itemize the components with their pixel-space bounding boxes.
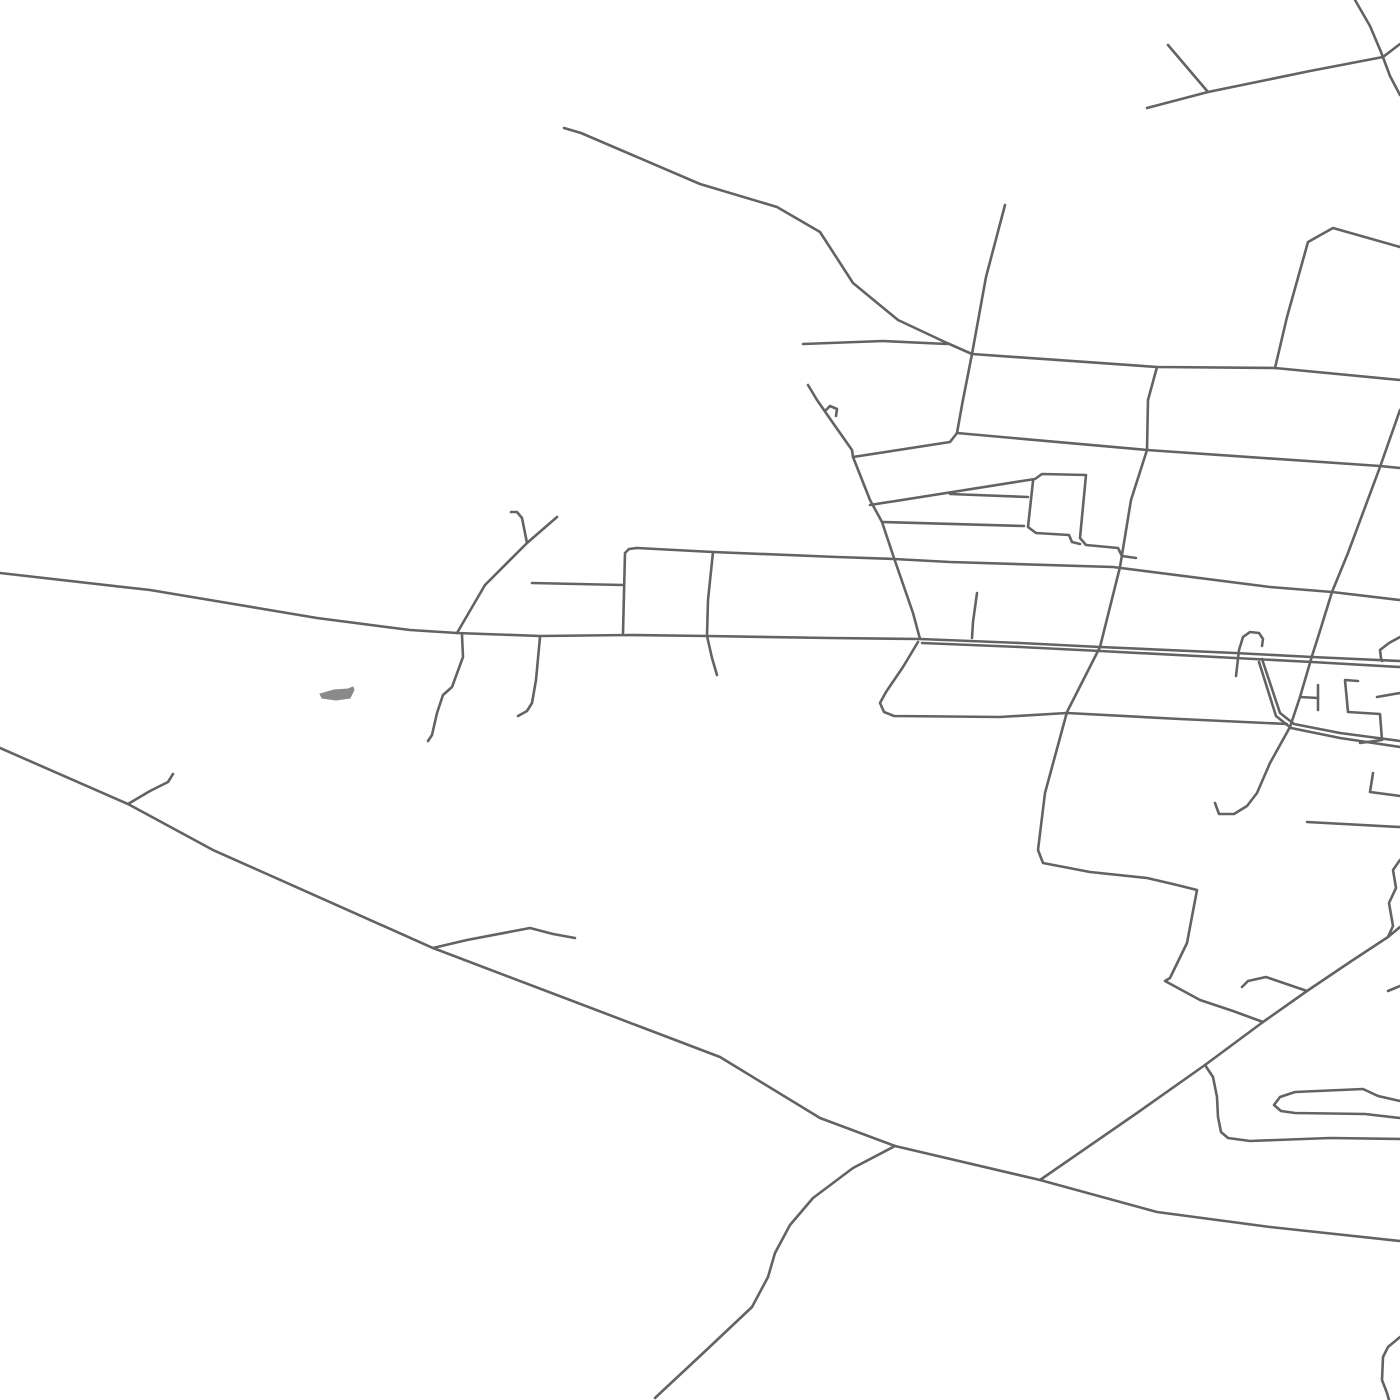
road-mid-vertical-street [707,552,717,675]
road-ladder-rung-h [1300,697,1318,698]
road-right-edge-stub-2 [1388,986,1400,991]
road-northeast-diagonal [1040,927,1400,1180]
road-cross-street-2 [637,548,1400,600]
road-cul-de-sac-loop [1274,1089,1400,1118]
road-cross-street-1 [957,433,1400,468]
road-fork-down-lane [428,635,463,741]
road-north-vertical [957,205,1005,433]
road-block-lane-1 [950,494,1028,497]
road-l-shape-lane [1370,773,1400,796]
road-top-right-diagonal [1147,44,1400,108]
road-bottom-right-curve [1382,1337,1400,1400]
road-fork-up-curl [511,512,527,543]
road-southwest-branch-road [433,928,575,948]
road-lower-road-east-b [1259,662,1400,747]
road-block-loop-inner [1028,481,1080,544]
road-top-right-curve [1355,0,1400,95]
road-south-branch-road [655,1146,895,1398]
road-long-vertical-street [1038,367,1263,1022]
road-southeast-loop-road [1205,1065,1400,1141]
road-northeast-diag-stub [1242,977,1307,991]
road-main-road-east-b [922,643,1400,667]
road-north-spur-short [972,593,977,638]
road-southwest-branch-small [128,774,173,804]
road-right-edge-wiggle [1388,860,1400,937]
road-top-right-spur [1168,45,1208,92]
road-junction-link [853,433,957,457]
road-right-hook-lane [1380,637,1400,661]
road-main-road-east-a [920,639,1400,661]
road-block-lane-2 [882,522,1024,526]
road-north-road-stub [803,341,947,344]
map-view [0,0,1400,1400]
road-fork-up-lane [457,517,557,633]
road-block-loop-outer [870,474,1136,558]
small-gray-area [320,687,354,700]
road-right-block-street [1275,228,1400,368]
road-south-stub-1 [518,637,540,716]
road-long-cross-diagonal [1215,410,1400,814]
road-southeast-segment [1307,822,1400,827]
road-right-edge-stub-1 [1377,693,1400,697]
road-west-block-stub [532,583,623,585]
road-north-road [564,128,1400,380]
road-south-frontage-road [880,642,1287,724]
map-canvas [0,0,1400,1400]
road-lower-road-east-a [1262,659,1400,741]
road-west-block-edge [623,548,637,633]
road-steep-diagonal-street [808,385,920,639]
